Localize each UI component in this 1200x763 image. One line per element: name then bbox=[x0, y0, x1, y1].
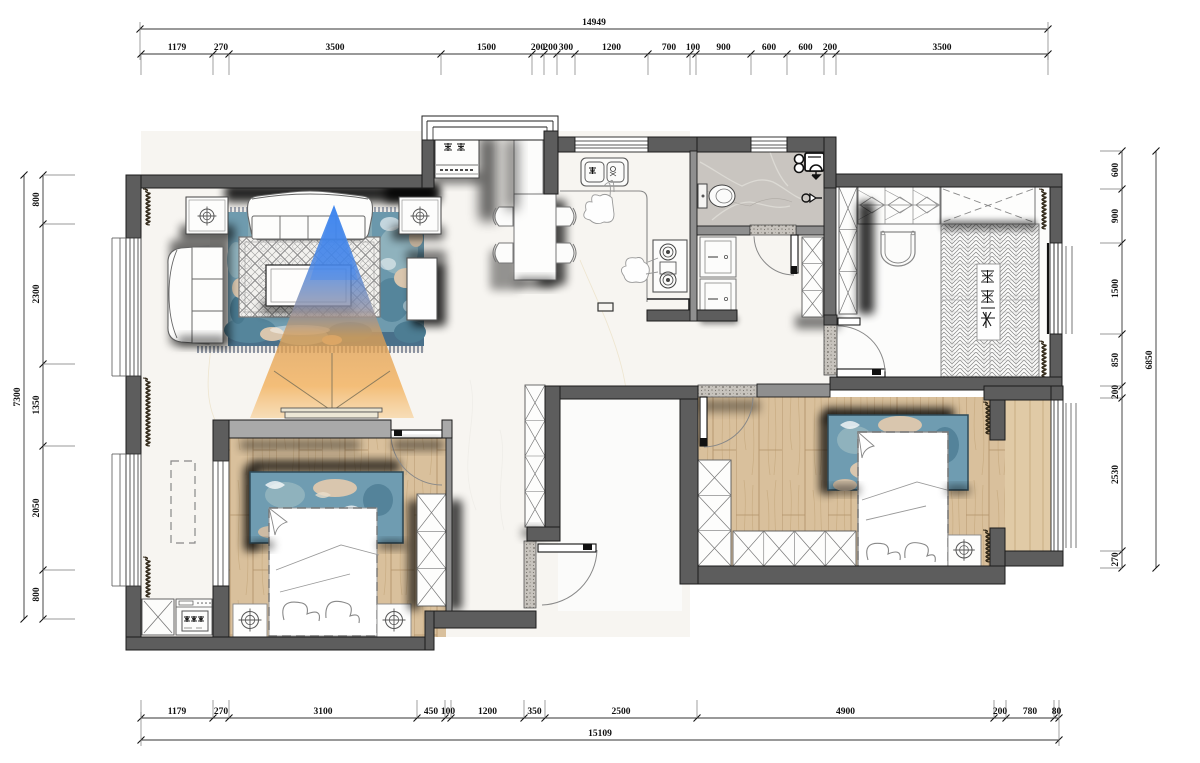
svg-text:1200: 1200 bbox=[478, 707, 497, 717]
svg-text:7300: 7300 bbox=[13, 387, 23, 406]
svg-text:3100: 3100 bbox=[314, 707, 333, 717]
svg-text:2050: 2050 bbox=[32, 498, 42, 517]
svg-text:6850: 6850 bbox=[1145, 350, 1155, 369]
svg-text:3500: 3500 bbox=[933, 43, 952, 53]
svg-text:300: 300 bbox=[559, 43, 574, 53]
svg-text:270: 270 bbox=[214, 707, 229, 717]
svg-text:800: 800 bbox=[32, 192, 42, 207]
svg-text:2300: 2300 bbox=[32, 284, 42, 303]
svg-text:1500: 1500 bbox=[477, 43, 496, 53]
svg-text:600: 600 bbox=[1111, 163, 1121, 178]
svg-text:600: 600 bbox=[762, 43, 777, 53]
svg-text:200: 200 bbox=[993, 707, 1008, 717]
svg-text:200: 200 bbox=[543, 43, 558, 53]
svg-text:800: 800 bbox=[32, 587, 42, 602]
svg-text:450: 450 bbox=[424, 707, 439, 717]
svg-text:270: 270 bbox=[214, 43, 229, 53]
svg-text:15109: 15109 bbox=[588, 729, 612, 739]
svg-text:4900: 4900 bbox=[836, 707, 855, 717]
svg-text:1179: 1179 bbox=[168, 43, 187, 53]
svg-text:600: 600 bbox=[798, 43, 813, 53]
svg-text:3500: 3500 bbox=[326, 43, 345, 53]
svg-text:14949: 14949 bbox=[582, 18, 606, 28]
svg-text:100: 100 bbox=[686, 43, 701, 53]
svg-text:900: 900 bbox=[1111, 209, 1121, 224]
svg-text:270: 270 bbox=[1111, 552, 1121, 567]
svg-text:780: 780 bbox=[1023, 707, 1038, 717]
svg-text:200: 200 bbox=[823, 43, 838, 53]
svg-text:1200: 1200 bbox=[602, 43, 621, 53]
svg-text:900: 900 bbox=[716, 43, 731, 53]
svg-text:2500: 2500 bbox=[612, 707, 631, 717]
svg-text:80: 80 bbox=[1052, 707, 1062, 717]
svg-text:850: 850 bbox=[1111, 353, 1121, 368]
svg-text:350: 350 bbox=[527, 707, 542, 717]
svg-text:200: 200 bbox=[1111, 385, 1121, 400]
svg-text:700: 700 bbox=[662, 43, 677, 53]
svg-text:1350: 1350 bbox=[32, 395, 42, 414]
svg-text:1179: 1179 bbox=[168, 707, 187, 717]
svg-text:100: 100 bbox=[441, 707, 456, 717]
svg-text:2530: 2530 bbox=[1111, 465, 1121, 484]
svg-text:1500: 1500 bbox=[1111, 279, 1121, 298]
